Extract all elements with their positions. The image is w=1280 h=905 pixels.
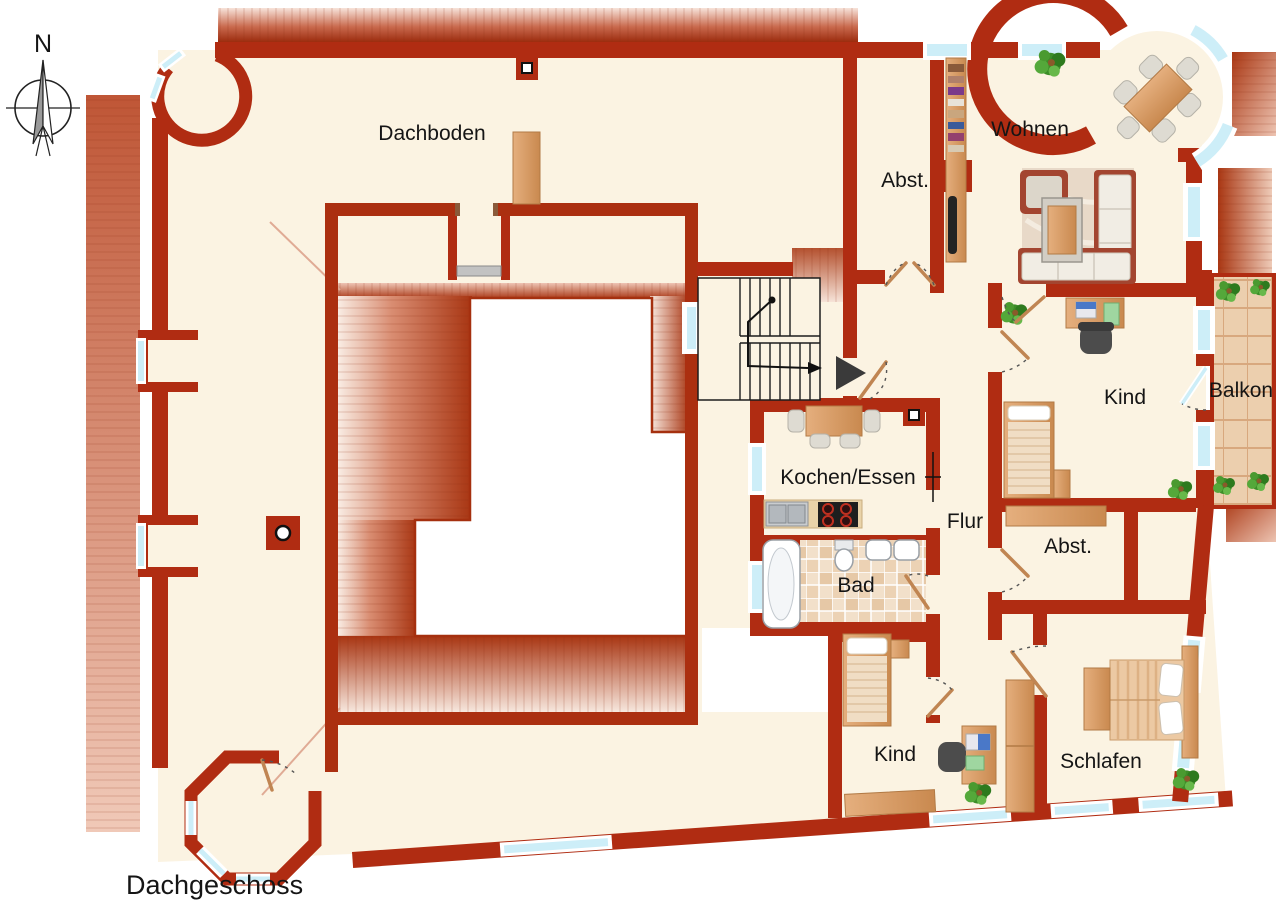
label-schlafen: Schlafen xyxy=(1060,750,1142,773)
floorplan-page: N xyxy=(0,0,1280,905)
tv xyxy=(948,196,957,254)
kitchen-table xyxy=(806,406,862,436)
dormer xyxy=(448,216,510,280)
label-kind-bottom: Kind xyxy=(874,743,916,766)
east-wall-balcony xyxy=(1196,270,1212,308)
label-wohnen: Wohnen xyxy=(991,118,1069,141)
bedside-table xyxy=(1084,668,1110,730)
label-kochen-essen: Kochen/Essen xyxy=(780,466,915,489)
west-wall xyxy=(152,118,168,332)
label-bad: Bad xyxy=(837,574,874,597)
label-abst-top: Abst. xyxy=(881,169,929,192)
sink xyxy=(866,540,891,560)
toilet xyxy=(835,549,853,571)
sink xyxy=(894,540,919,560)
compass-rose: N xyxy=(6,30,80,156)
attic-board xyxy=(513,132,540,204)
floorplan-drawing: N xyxy=(0,0,1280,905)
sideboard xyxy=(845,790,936,817)
label-dachboden: Dachboden xyxy=(378,122,485,145)
floor-title: Dachgeschoss xyxy=(126,870,303,900)
label-flur: Flur xyxy=(947,510,983,533)
label-abst-mid: Abst. xyxy=(1044,535,1092,558)
sofa-group xyxy=(1018,168,1136,284)
office-chair xyxy=(938,742,966,772)
compass-north-label: N xyxy=(34,30,52,58)
label-kind-top: Kind xyxy=(1104,386,1146,409)
storage-shelf xyxy=(1006,506,1106,526)
label-balkon: Balkon xyxy=(1209,379,1273,402)
